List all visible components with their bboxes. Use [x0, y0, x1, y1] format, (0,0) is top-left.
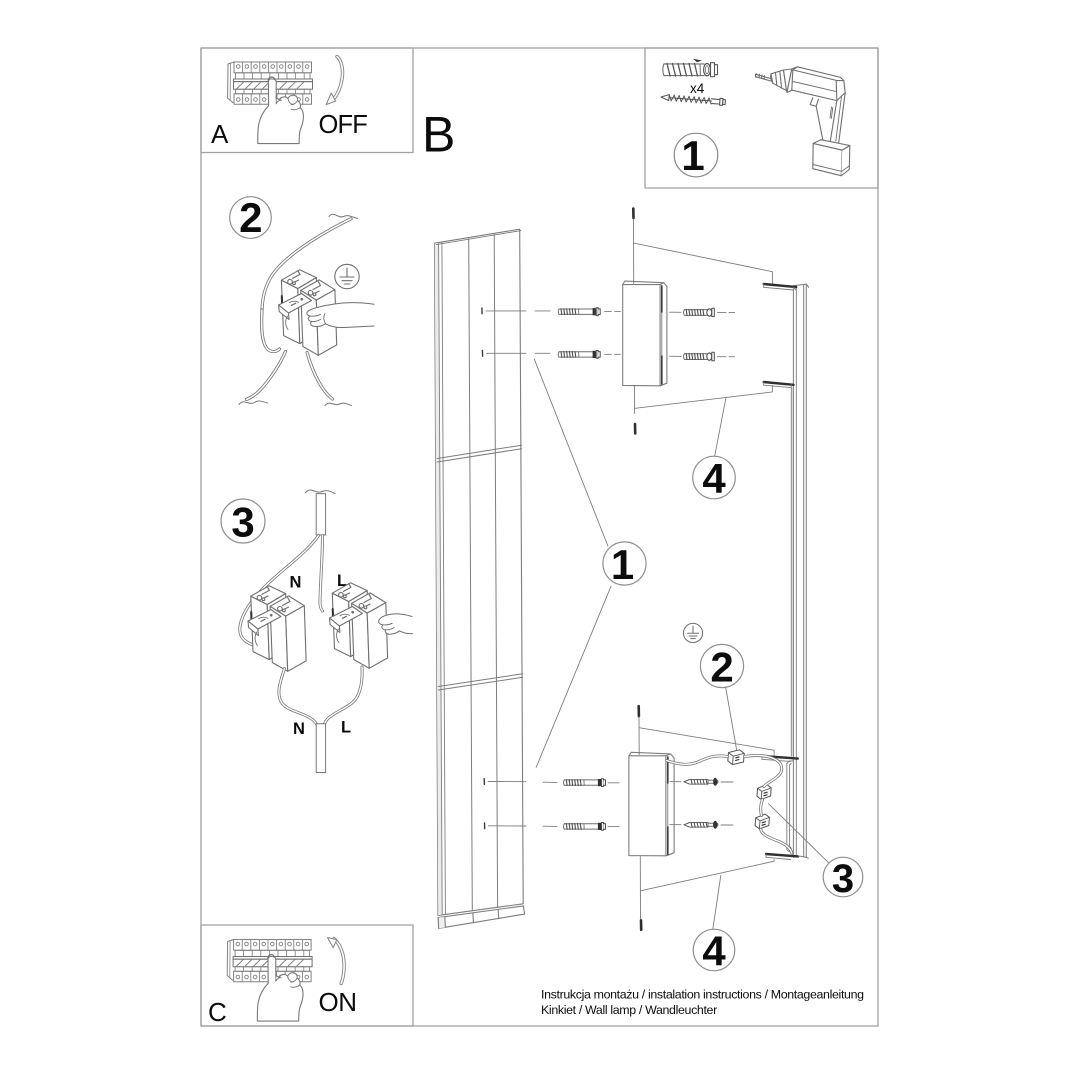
- svg-text:L: L: [341, 719, 351, 737]
- svg-text:Instrukcja montażu / instalati: Instrukcja montażu / instalation instruc…: [541, 988, 864, 1002]
- svg-text:N: N: [293, 720, 305, 738]
- svg-text:2: 2: [710, 644, 733, 691]
- svg-text:A: A: [211, 119, 229, 149]
- svg-text:x4: x4: [690, 81, 705, 96]
- svg-text:3: 3: [231, 499, 254, 546]
- svg-text:1: 1: [681, 132, 704, 179]
- svg-text:ON: ON: [319, 987, 357, 1017]
- svg-text:1: 1: [611, 541, 634, 588]
- svg-text:4: 4: [702, 455, 726, 502]
- svg-text:Kinkiet / Wall lamp / Wandleuc: Kinkiet / Wall lamp / Wandleuchter: [541, 1003, 717, 1017]
- svg-text:4: 4: [702, 928, 726, 975]
- svg-text:C: C: [208, 997, 227, 1027]
- svg-text:B: B: [422, 107, 455, 163]
- svg-text:OFF: OFF: [319, 111, 368, 139]
- svg-text:2: 2: [239, 194, 262, 241]
- svg-text:N: N: [290, 574, 302, 592]
- svg-text:3: 3: [832, 857, 854, 901]
